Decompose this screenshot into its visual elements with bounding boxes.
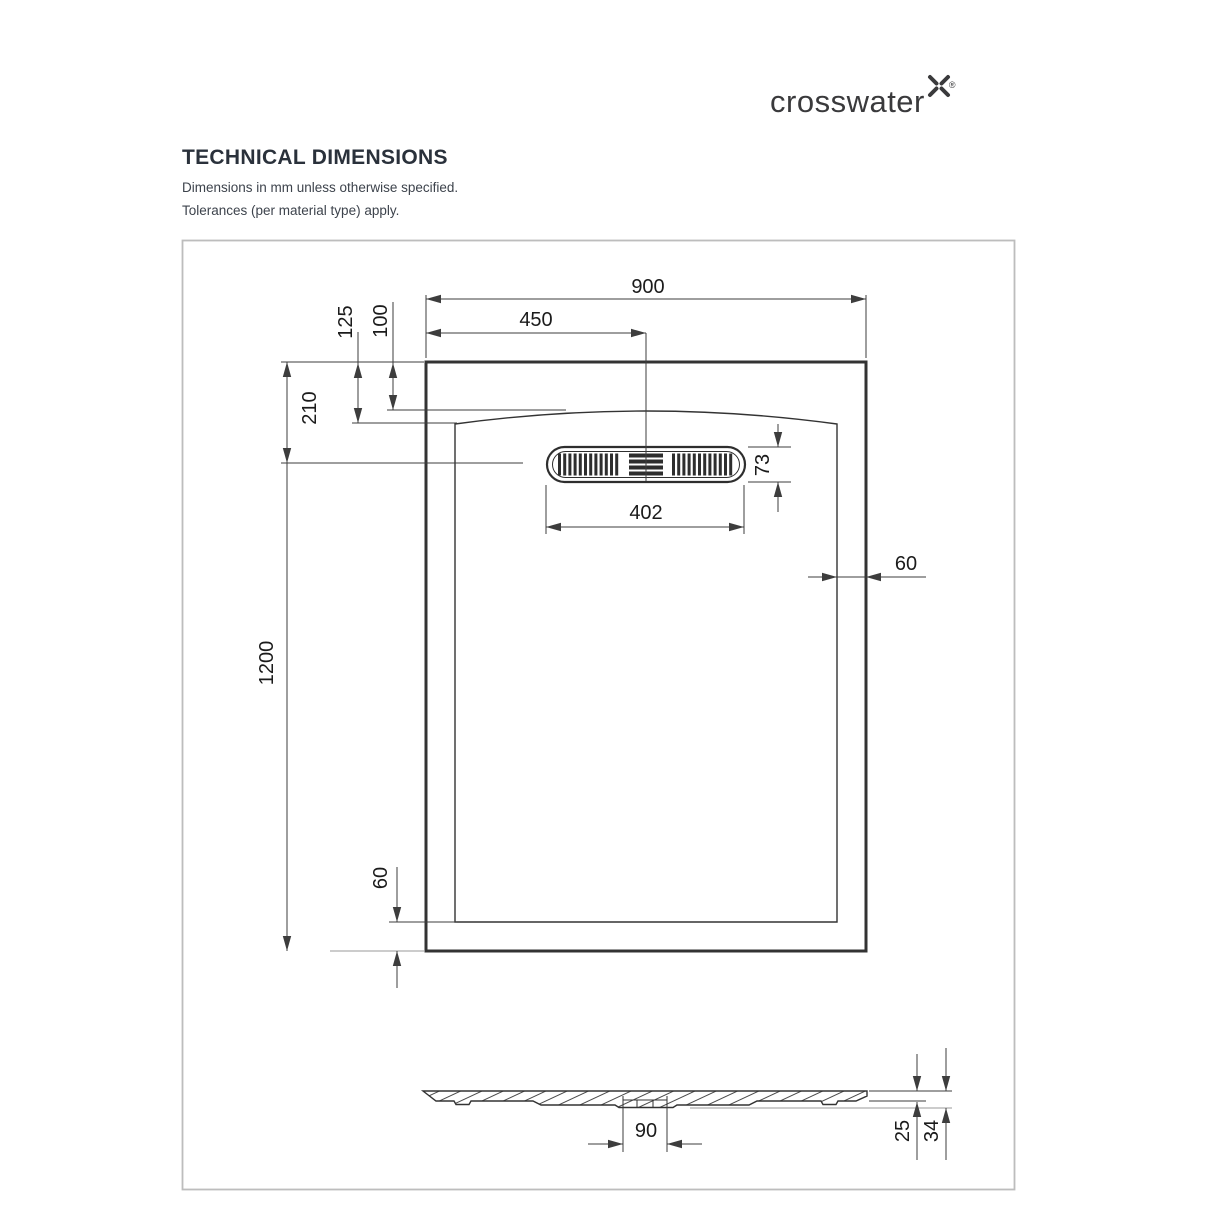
dim-overall-length-label: 1200 xyxy=(256,641,278,686)
dim-drain-center-from-left-label: 450 xyxy=(519,309,552,331)
dim-overall-thickness-label: 34 xyxy=(921,1120,943,1142)
dim-rim-width-right-label: 60 xyxy=(895,553,917,575)
dim-edge-thickness-label: 25 xyxy=(892,1120,914,1142)
dim-overall-width-label: 900 xyxy=(631,276,664,298)
dim-waste-recess-width-label: 90 xyxy=(635,1120,657,1142)
dim-drain-cover-depth-label: 73 xyxy=(752,454,774,476)
dim-rim-to-basin-arc-label: 100 xyxy=(370,304,392,337)
dim-rim-width-bottom-label: 60 xyxy=(370,867,392,889)
page: crosswater® TECHNICAL DIMENSIONS Dimensi… xyxy=(0,0,1214,1214)
dim-rim-to-basin-corner-label: 125 xyxy=(335,305,357,338)
dim-rim-to-drain-center-label: 210 xyxy=(299,391,321,424)
technical-drawing: 900 450 125 xyxy=(0,0,1214,1214)
dim-drain-cover-length-label: 402 xyxy=(629,502,662,524)
